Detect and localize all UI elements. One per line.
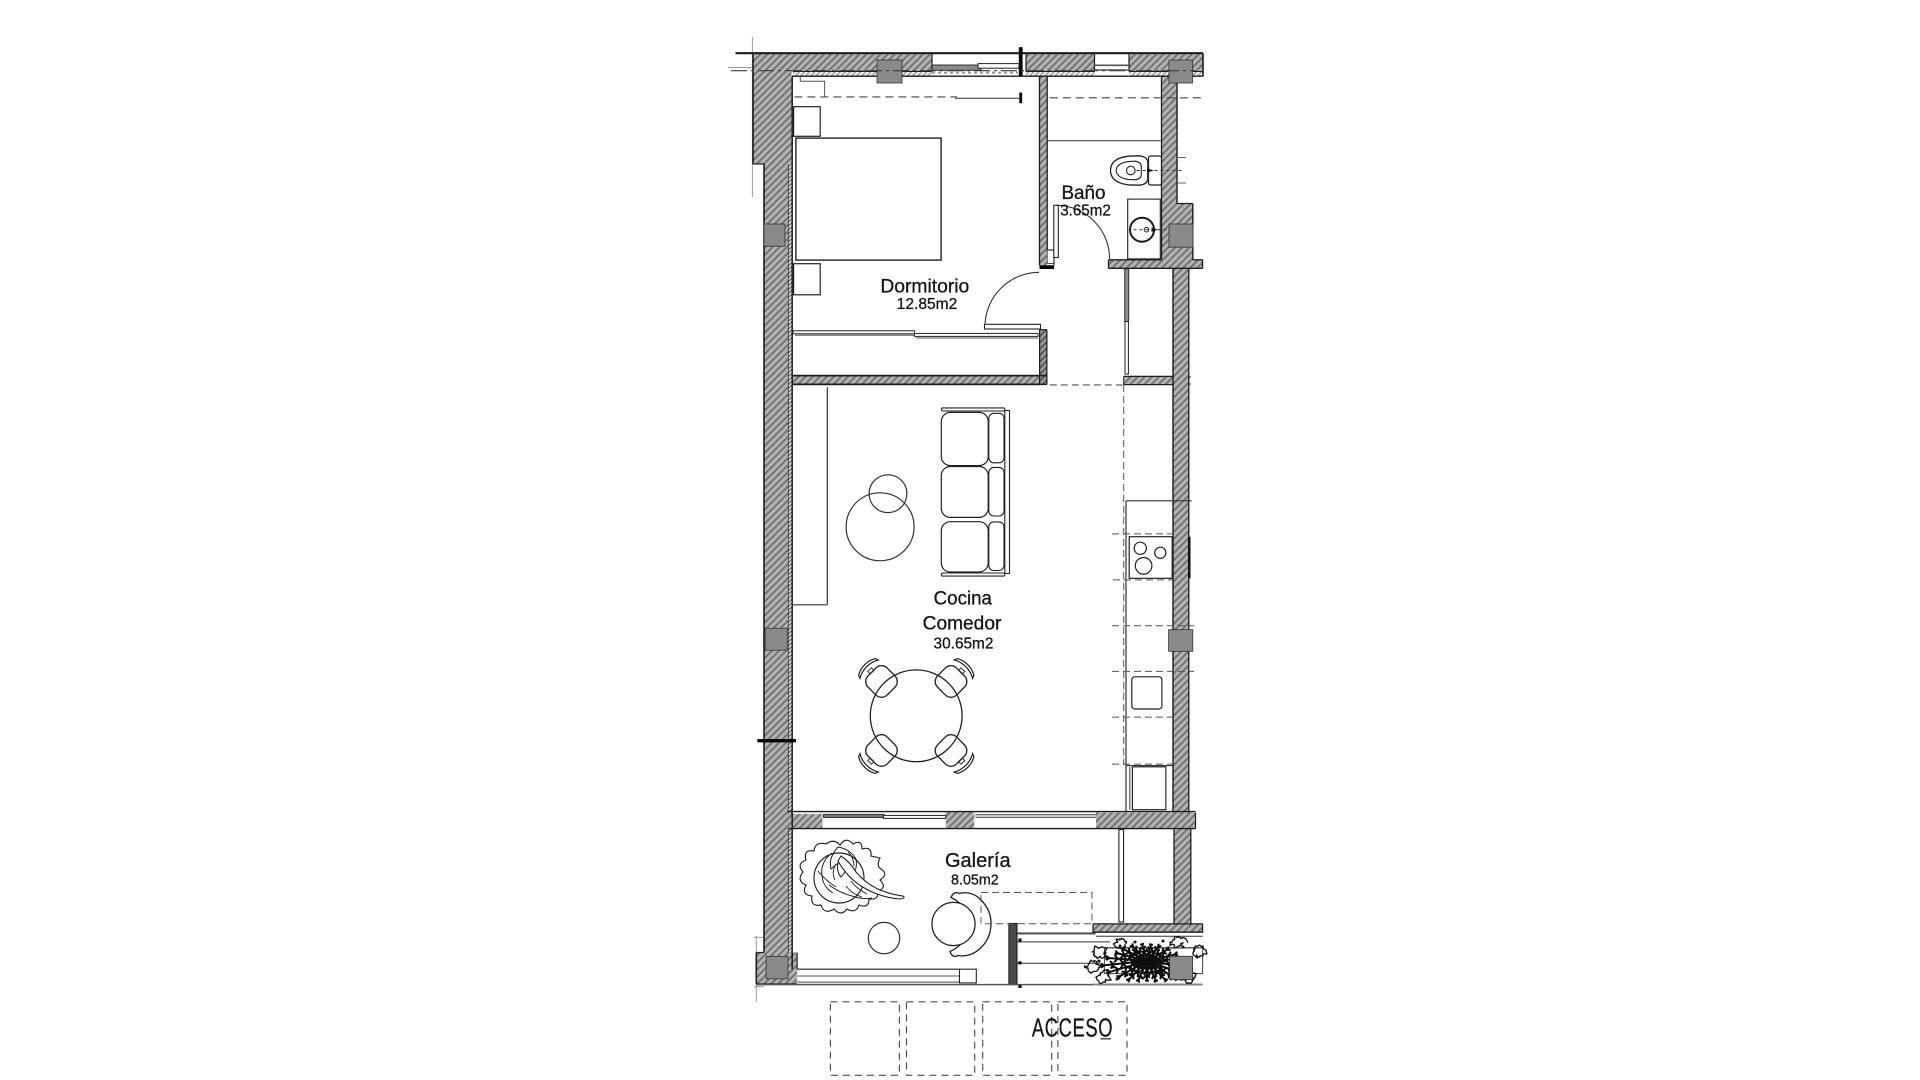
svg-text:30.65m2: 30.65m2 (934, 635, 994, 652)
svg-text:Cocina: Cocina (934, 588, 993, 609)
svg-text:12.85m2: 12.85m2 (897, 296, 958, 313)
svg-text:8.05m2: 8.05m2 (951, 872, 999, 888)
svg-text:Comedor: Comedor (923, 614, 1002, 635)
svg-text:Galería: Galería (945, 850, 1011, 872)
svg-text:ACCESO: ACCESO (1032, 1014, 1113, 1043)
svg-text:Baño: Baño (1061, 183, 1105, 204)
svg-text:3.65m2: 3.65m2 (1060, 203, 1111, 220)
svg-text:Dormitorio: Dormitorio (880, 275, 969, 297)
